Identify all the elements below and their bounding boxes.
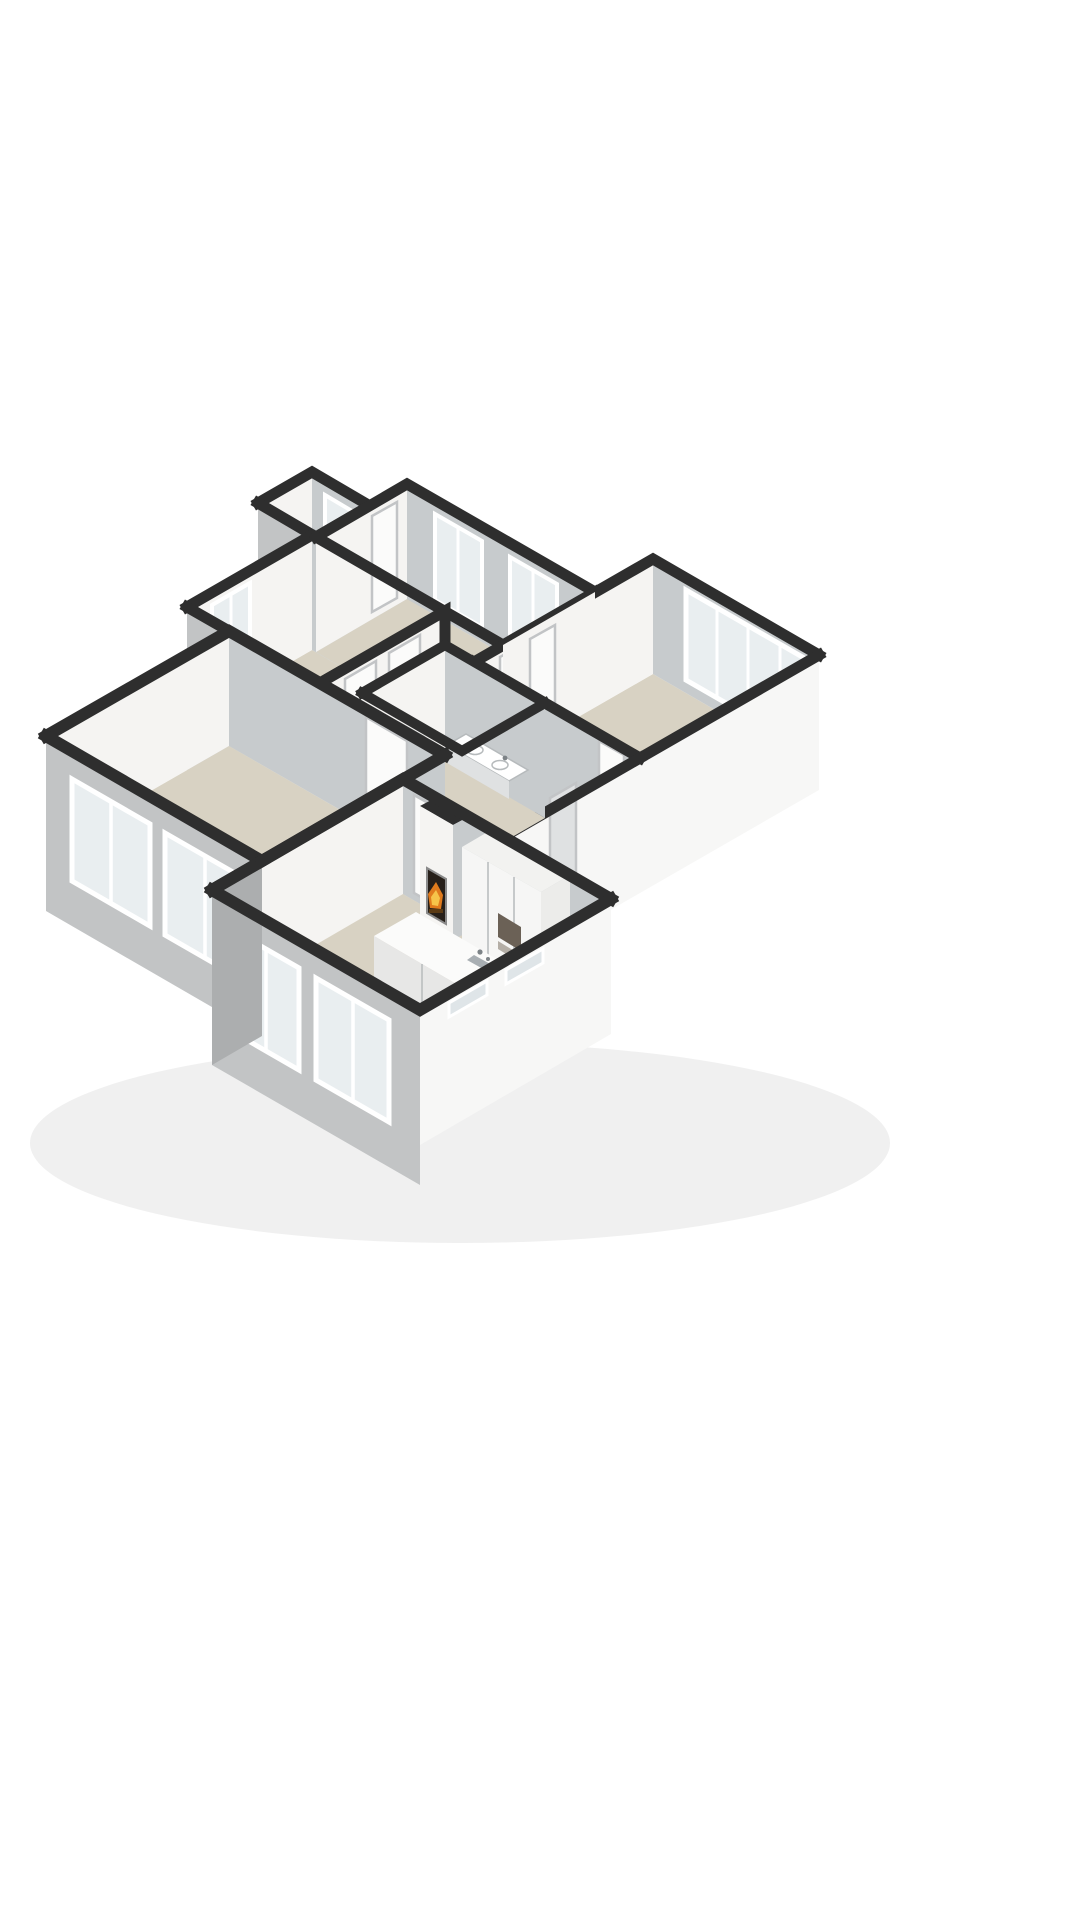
bedroom2-door — [372, 502, 397, 612]
vanity-faucet-right — [503, 756, 508, 761]
floorplan-canvas — [0, 0, 1080, 1920]
fire-logs — [429, 909, 443, 913]
building — [30, 472, 890, 1243]
island-faucet — [477, 949, 482, 954]
floorplan-3d-render — [0, 0, 1080, 1920]
island-sink-drain — [486, 957, 490, 961]
vanity-sink-right — [492, 761, 508, 770]
